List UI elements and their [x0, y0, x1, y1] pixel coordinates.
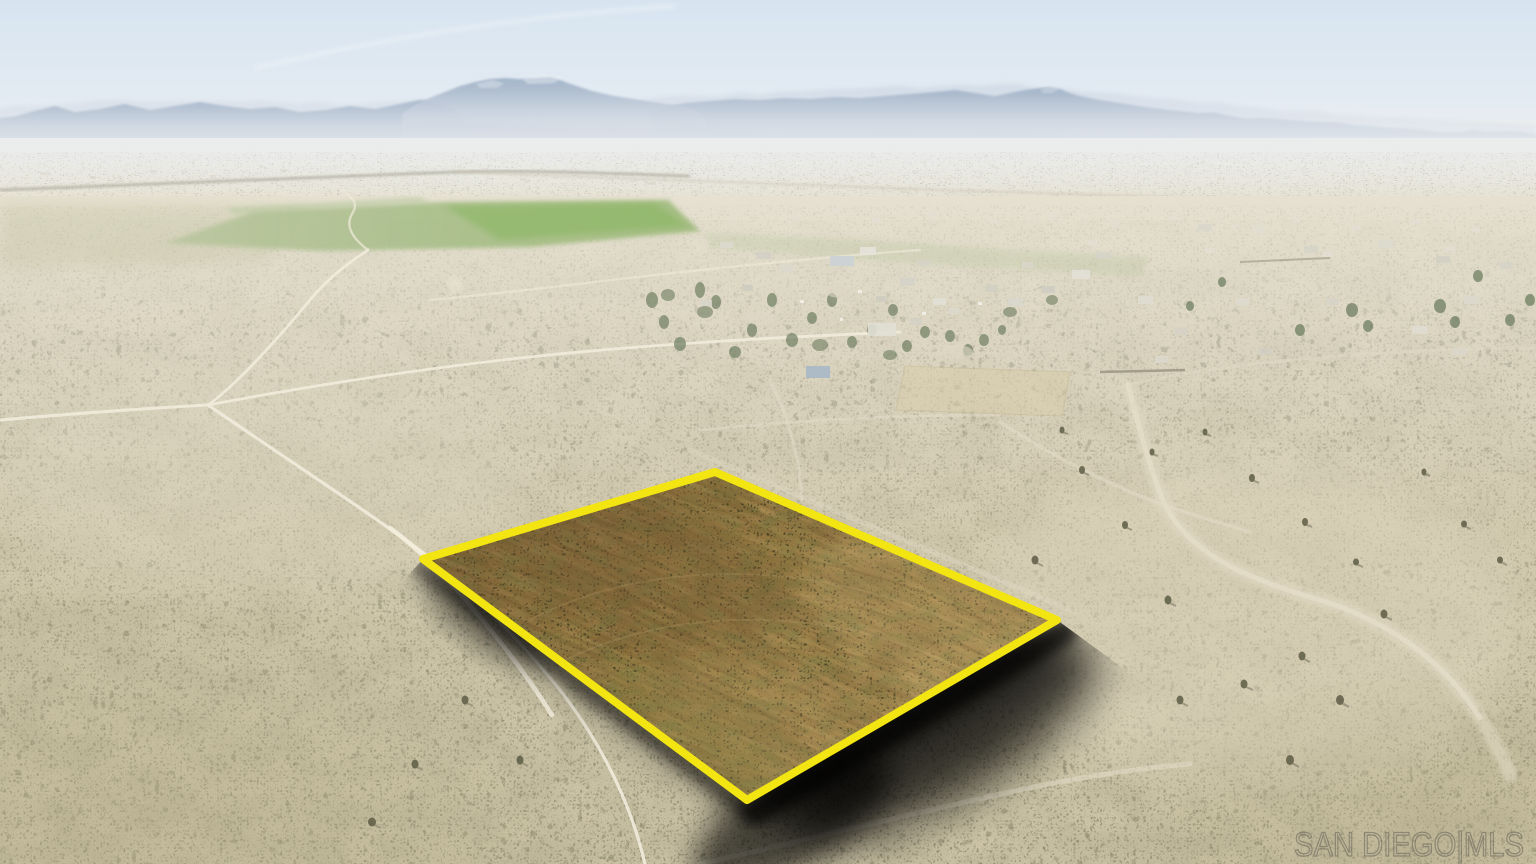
svg-text:SAN DIEGO|MLS: SAN DIEGO|MLS [1294, 826, 1524, 864]
